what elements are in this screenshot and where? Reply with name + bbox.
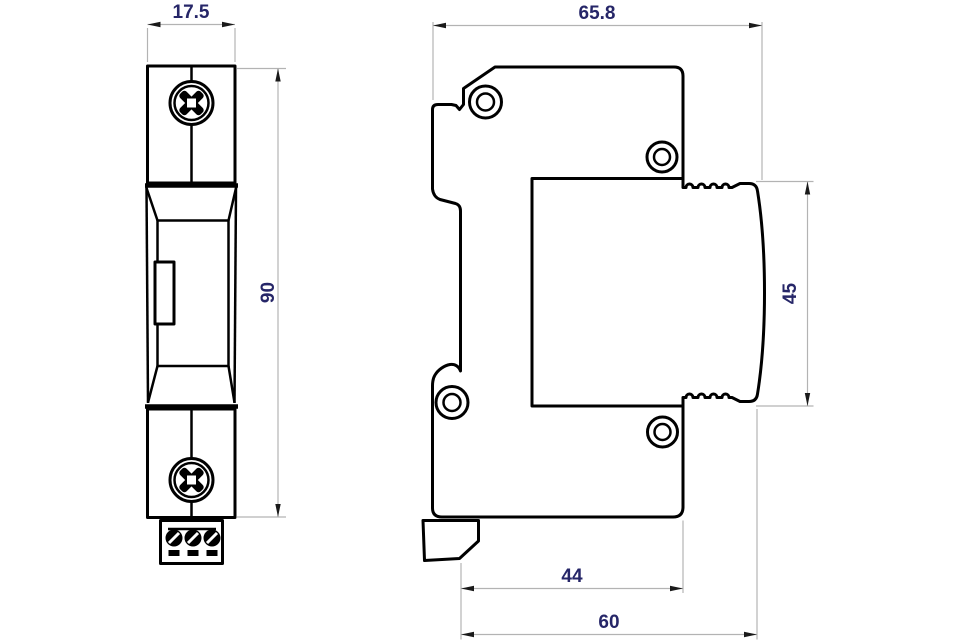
din-rail-clip-foot — [423, 521, 479, 561]
side-screw-boss — [470, 86, 502, 118]
screw-center-hole — [187, 476, 196, 485]
screw-center-hole — [187, 99, 196, 108]
side-view — [423, 67, 765, 561]
front-cover-section — [145, 186, 238, 407]
label-window — [155, 262, 174, 324]
side-screw-boss — [647, 142, 677, 172]
terminal-opening — [188, 550, 199, 556]
plug-in-module — [532, 179, 765, 407]
front-top-screw — [170, 82, 213, 125]
dim-label-total-depth: 60 — [598, 612, 619, 633]
side-screw-boss — [648, 417, 678, 447]
terminal-block — [161, 521, 223, 564]
terminal-opening — [169, 550, 180, 556]
terminal-screw — [185, 530, 202, 547]
dimension-front-height: 90 — [237, 69, 286, 518]
front-view — [145, 66, 238, 564]
side-screw-boss — [436, 387, 468, 419]
dimension-front-width: 17.5 — [148, 2, 236, 62]
dim-label-base-depth: 44 — [561, 566, 583, 587]
terminal-screw — [204, 530, 221, 547]
dimension-base-depth: 44 — [461, 521, 683, 640]
dim-label-front-width: 17.5 — [173, 2, 210, 23]
terminal-opening — [207, 550, 218, 556]
front-bottom-screw — [170, 459, 213, 502]
dim-label-module-height: 45 — [780, 283, 801, 305]
dimensioned-drawing: 17.5 90 65.8 45 44 — [0, 0, 960, 640]
technical-drawing-canvas: 17.5 90 65.8 45 44 — [0, 0, 960, 640]
dim-label-front-height: 90 — [258, 282, 279, 303]
dim-label-side-width: 65.8 — [579, 3, 616, 24]
terminal-screw — [166, 530, 183, 547]
